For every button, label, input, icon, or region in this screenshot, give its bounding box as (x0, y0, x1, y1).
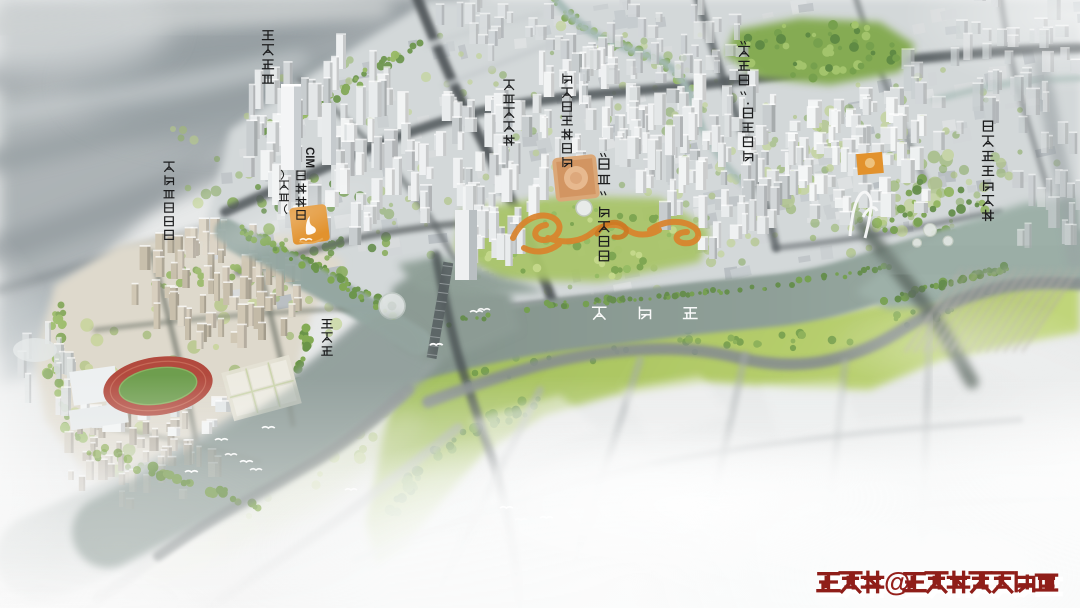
svg-text:CIM: CIM (303, 147, 315, 168)
